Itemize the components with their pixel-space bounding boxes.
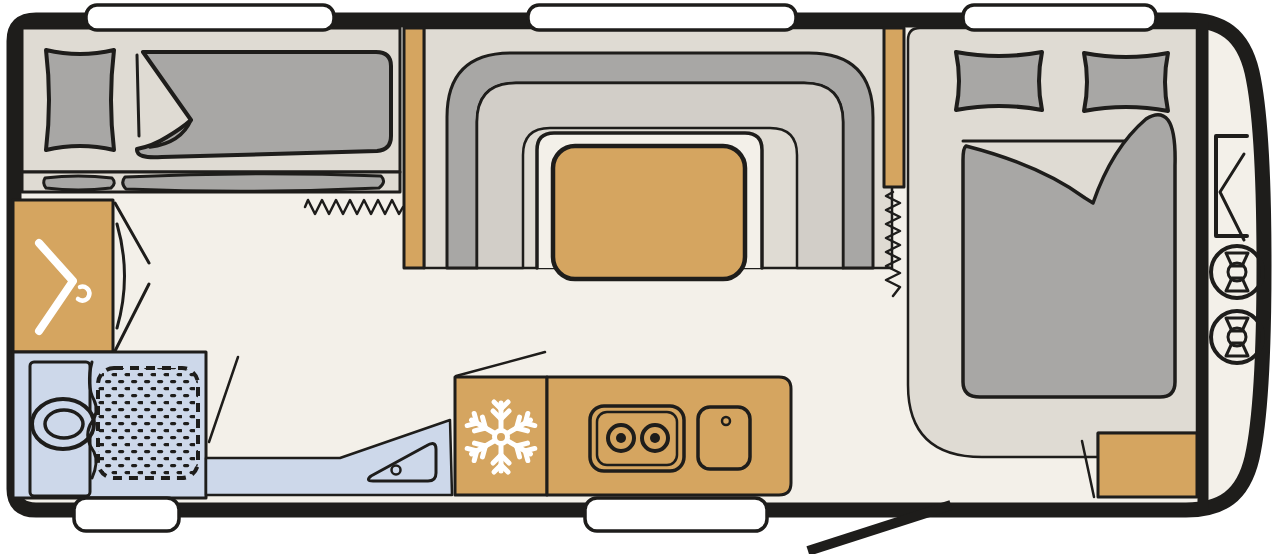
washroom: [13, 352, 238, 498]
bunk-pillow: [46, 50, 114, 150]
lower-bunk-mattress-left: [44, 176, 115, 190]
partition-right: [884, 28, 904, 187]
bunk-bed-area: [22, 28, 403, 214]
shower-tray-icon: [98, 368, 198, 478]
caravan-floor-plan: [0, 0, 1280, 554]
hob-burner-right-dot: [650, 433, 660, 443]
window-bottom-left: [74, 498, 179, 531]
bed-pillow-left: [956, 52, 1042, 110]
partition-left: [404, 28, 424, 268]
window-bottom-center: [585, 498, 767, 531]
lounge-table: [553, 146, 745, 279]
floor-plan-canvas: [0, 0, 1280, 554]
double-bed-area: [908, 28, 1197, 497]
bed-pillow-right: [1084, 53, 1168, 111]
window-top-center: [528, 5, 796, 30]
window-top-left: [86, 5, 334, 30]
u-lounge: [424, 28, 892, 279]
wardrobe-cabinet: [13, 200, 113, 352]
hob-burner-left-dot: [616, 433, 626, 443]
bunk-duvet-fold-edge: [137, 55, 139, 136]
bed-foot-cabinet: [1098, 433, 1197, 497]
window-top-right: [963, 5, 1156, 30]
lower-bunk-mattress-right: [123, 174, 384, 192]
